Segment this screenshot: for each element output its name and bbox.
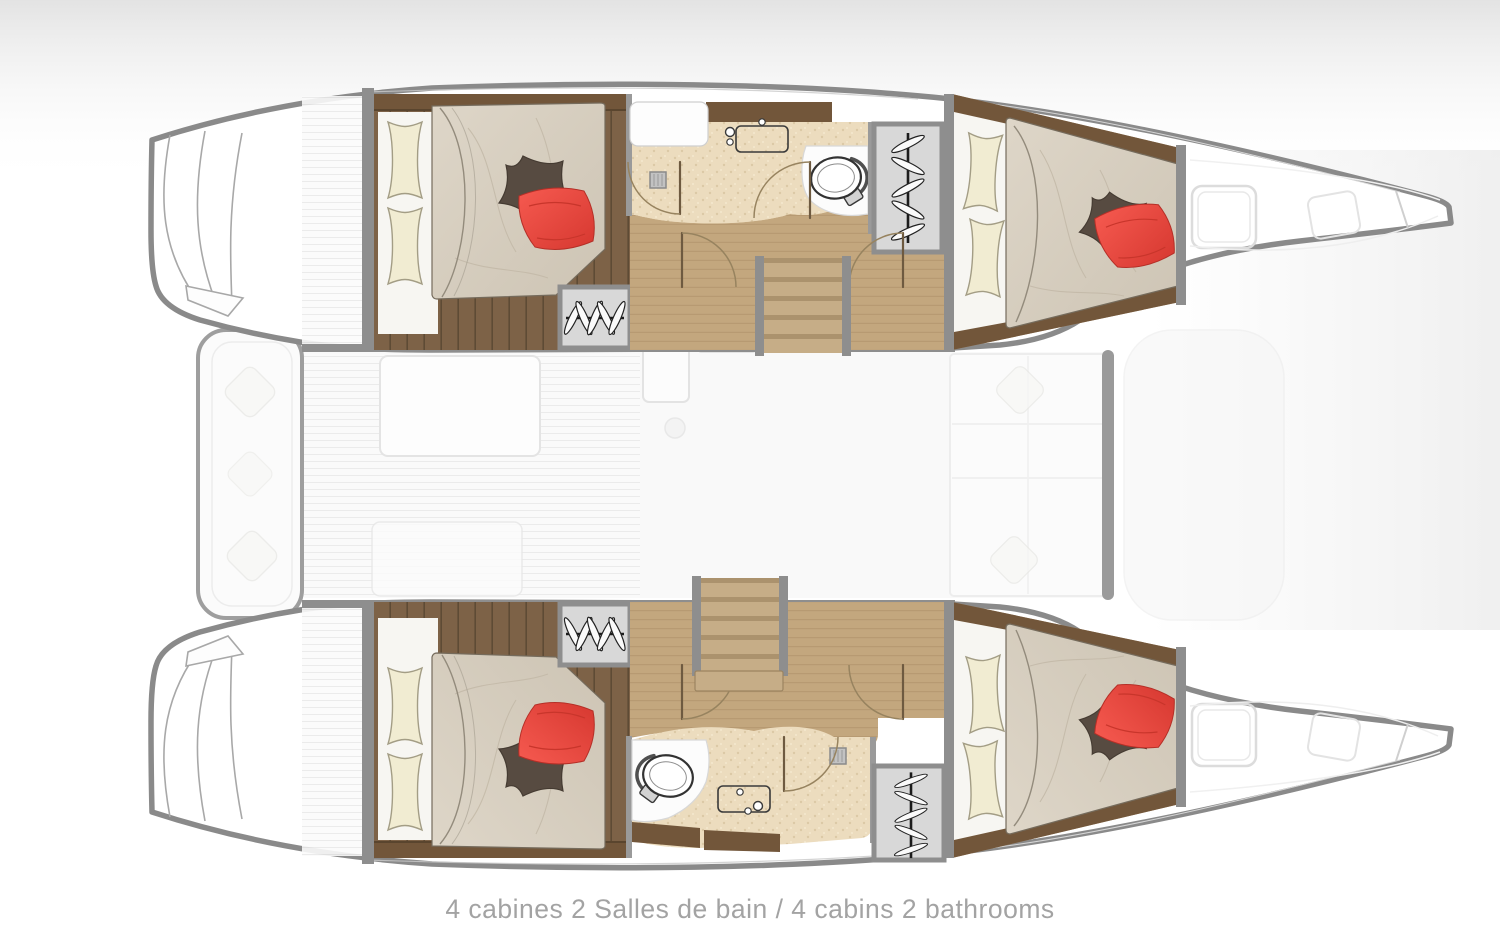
vanity-unit xyxy=(630,102,708,146)
wardrobe-hangers xyxy=(874,124,942,252)
shower-drain xyxy=(650,172,666,188)
plan-caption: 4 cabines 2 Salles de bain / 4 cabins 2 … xyxy=(445,894,1054,924)
cockpit-bench-ghost xyxy=(198,330,302,618)
companionway-stairs xyxy=(755,256,851,356)
decor-ghost xyxy=(665,418,685,438)
cockpit-table-ghost xyxy=(380,356,540,456)
saloon-sofa-ghost xyxy=(950,354,1106,596)
cockpit-seat-ghost xyxy=(372,522,522,596)
wardrobe-hangers xyxy=(874,766,944,860)
coachroof-ghost xyxy=(1124,330,1284,620)
catamaran-floor-plan: 4 cabines 2 Salles de bain / 4 cabins 2 … xyxy=(0,0,1500,950)
stair-landing xyxy=(695,671,783,691)
cabin-bulkhead xyxy=(944,94,954,350)
saloon-forward-wall xyxy=(1102,350,1114,600)
cabin-bulkhead xyxy=(944,602,954,858)
companionway-stairs xyxy=(692,576,788,676)
floor-plan-drawing: 4 cabines 2 Salles de bain / 4 cabins 2 … xyxy=(0,0,1500,950)
